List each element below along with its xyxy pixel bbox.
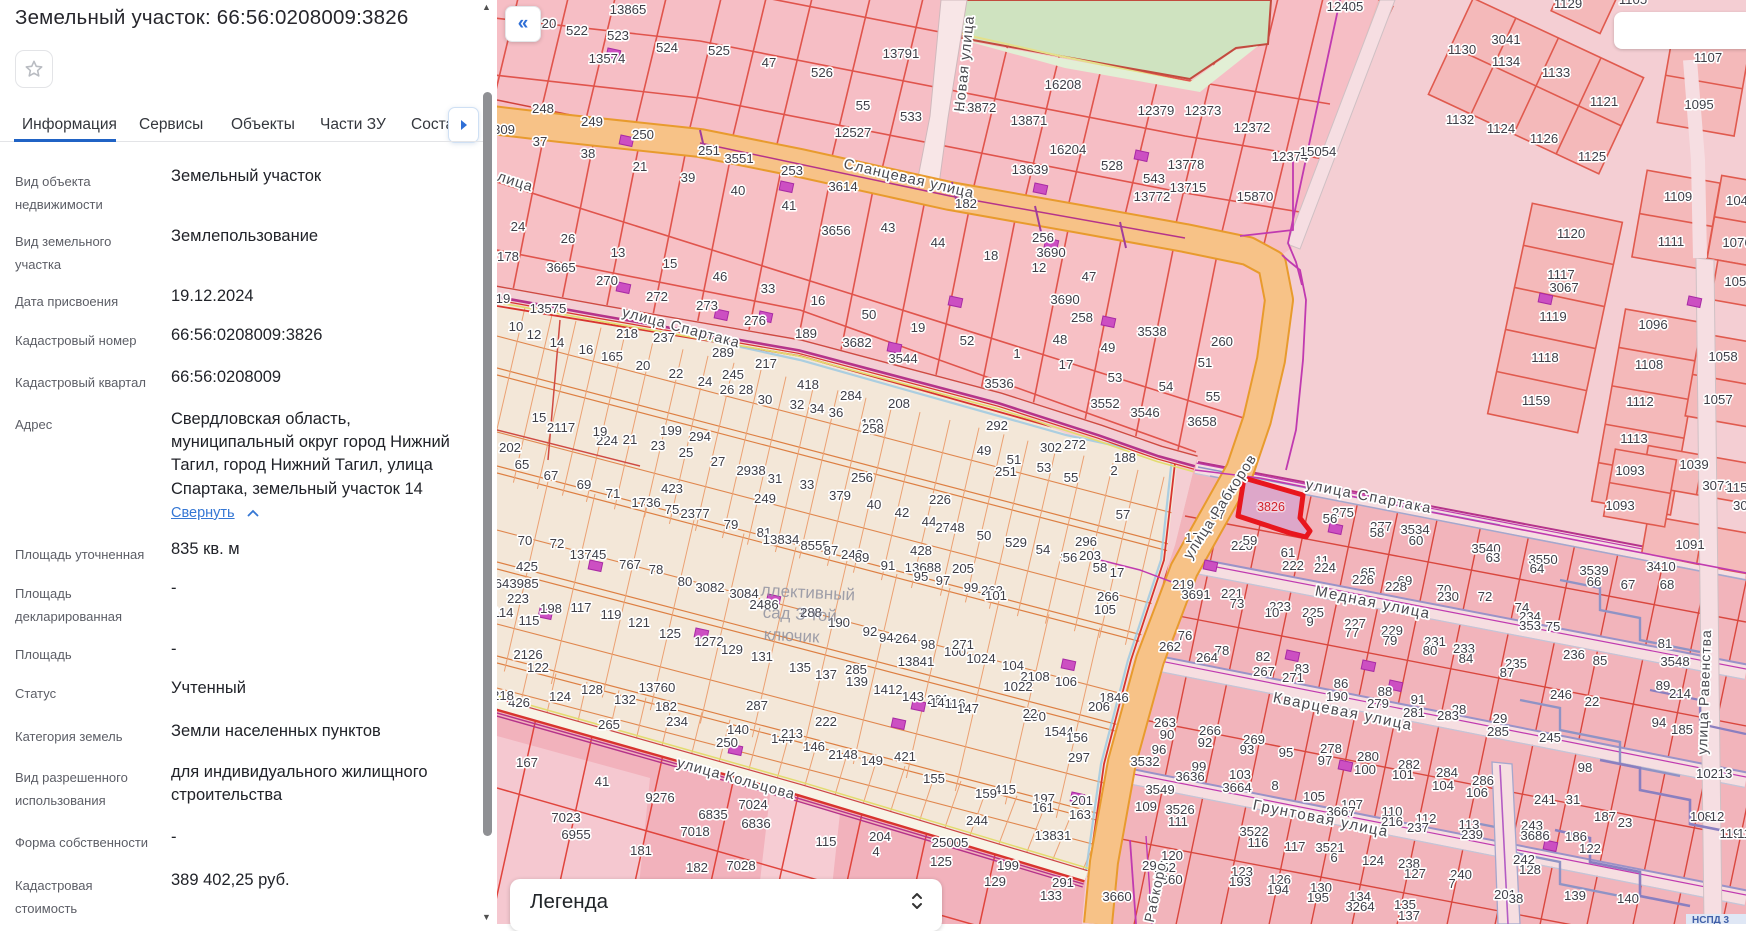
svg-text:253: 253	[781, 163, 803, 178]
svg-text:415: 415	[994, 782, 1016, 797]
svg-text:115: 115	[815, 834, 836, 849]
svg-text:1119: 1119	[1539, 309, 1566, 324]
svg-text:428: 428	[910, 543, 932, 558]
svg-text:33: 33	[761, 281, 776, 296]
svg-text:27: 27	[711, 454, 726, 469]
svg-text:50: 50	[977, 528, 992, 543]
svg-text:15: 15	[532, 410, 547, 425]
svg-text:1130: 1130	[1448, 42, 1476, 57]
svg-text:131: 131	[751, 649, 773, 664]
svg-text:237: 237	[1407, 820, 1429, 835]
svg-text:256: 256	[851, 470, 873, 485]
svg-text:3690: 3690	[1036, 245, 1065, 260]
svg-text:3549: 3549	[1145, 782, 1174, 797]
svg-text:4: 4	[872, 844, 879, 859]
svg-text:234: 234	[666, 714, 688, 729]
svg-text:3691: 3691	[1181, 587, 1210, 602]
svg-text:1058: 1058	[1708, 349, 1737, 364]
svg-text:НСПД 3: НСПД 3	[1692, 915, 1730, 924]
svg-text:3067: 3067	[1549, 280, 1578, 295]
svg-text:60: 60	[1409, 533, 1424, 548]
svg-text:132: 132	[614, 692, 636, 707]
svg-text:273: 273	[696, 298, 718, 313]
svg-text:89: 89	[855, 550, 870, 565]
svg-text:40: 40	[731, 183, 746, 198]
svg-text:250: 250	[632, 127, 654, 142]
svg-text:122: 122	[527, 660, 549, 675]
svg-text:533: 533	[900, 109, 922, 124]
svg-text:264: 264	[895, 631, 917, 646]
svg-text:58: 58	[1370, 525, 1385, 540]
svg-text:117: 117	[1284, 839, 1305, 854]
svg-text:19: 19	[593, 424, 608, 439]
svg-text:1076: 1076	[1722, 235, 1746, 250]
svg-text:47: 47	[1082, 269, 1097, 284]
svg-text:421: 421	[894, 749, 916, 764]
svg-text:18: 18	[984, 248, 999, 263]
svg-text:58: 58	[1093, 560, 1108, 575]
svg-text:22: 22	[1585, 694, 1600, 709]
svg-text:43: 43	[881, 220, 896, 235]
svg-text:78: 78	[649, 562, 664, 577]
svg-text:92: 92	[863, 624, 878, 639]
svg-text:147: 147	[957, 701, 979, 716]
svg-text:1124: 1124	[1487, 121, 1515, 136]
svg-text:1022: 1022	[1003, 679, 1032, 694]
svg-text:524: 524	[656, 40, 678, 55]
svg-text:87: 87	[824, 543, 839, 558]
svg-text:90: 90	[1160, 727, 1175, 742]
svg-text:129: 129	[721, 642, 743, 657]
svg-text:3614: 3614	[828, 179, 857, 194]
svg-text:79: 79	[724, 517, 739, 532]
svg-text:44: 44	[922, 514, 937, 529]
svg-text:161: 161	[1032, 800, 1054, 815]
svg-text:292: 292	[986, 418, 1008, 433]
svg-text:239: 239	[1461, 827, 1483, 842]
svg-text:214: 214	[1669, 686, 1691, 701]
svg-text:115: 115	[518, 613, 539, 628]
svg-text:56: 56	[1323, 511, 1338, 526]
svg-text:1643985: 1643985	[497, 576, 539, 591]
svg-text:53: 53	[1108, 370, 1123, 385]
svg-text:66: 66	[1587, 574, 1602, 589]
svg-text:97: 97	[1318, 753, 1333, 768]
svg-text:15: 15	[663, 256, 678, 271]
svg-text:47: 47	[762, 55, 777, 70]
svg-text:226: 226	[929, 492, 951, 507]
svg-text:13574: 13574	[589, 51, 626, 66]
svg-text:50: 50	[862, 307, 877, 322]
svg-text:3082: 3082	[695, 580, 724, 595]
svg-text:1057: 1057	[1703, 392, 1732, 407]
svg-text:115: 115	[1726, 480, 1746, 495]
svg-text:3682: 3682	[842, 335, 871, 350]
svg-text:22: 22	[1023, 706, 1038, 721]
svg-text:102: 102	[1696, 766, 1718, 781]
svg-text:67: 67	[1621, 577, 1636, 592]
svg-text:31: 31	[1566, 792, 1581, 807]
svg-text:3636: 3636	[1175, 769, 1204, 784]
svg-text:16204: 16204	[1050, 142, 1087, 157]
svg-text:523: 523	[607, 28, 629, 43]
svg-text:1109: 1109	[1664, 189, 1692, 204]
svg-text:1125: 1125	[1578, 149, 1606, 164]
svg-text:36: 36	[829, 405, 844, 420]
svg-text:3658: 3658	[1187, 414, 1216, 429]
svg-text:100: 100	[1354, 762, 1376, 777]
svg-text:41: 41	[782, 198, 797, 213]
svg-text:195: 195	[1307, 890, 1329, 905]
svg-text:128: 128	[581, 682, 603, 697]
svg-text:40: 40	[867, 497, 882, 512]
svg-text:26: 26	[561, 231, 576, 246]
svg-text:22: 22	[669, 366, 684, 381]
svg-text:12379: 12379	[1138, 103, 1175, 118]
svg-text:20: 20	[542, 16, 557, 31]
svg-text:105: 105	[1303, 789, 1325, 804]
svg-text:111: 111	[1168, 814, 1188, 829]
svg-text:218: 218	[497, 688, 514, 703]
svg-text:3656: 3656	[821, 223, 850, 238]
svg-text:19: 19	[911, 320, 926, 335]
svg-text:97: 97	[936, 573, 951, 588]
svg-text:72: 72	[550, 536, 565, 551]
svg-text:121: 121	[628, 615, 650, 630]
svg-text:1118: 1118	[1531, 350, 1558, 365]
svg-text:307: 307	[1733, 498, 1746, 513]
svg-text:3536: 3536	[984, 376, 1013, 391]
svg-text:264: 264	[1196, 650, 1218, 665]
svg-text:116: 116	[1247, 835, 1268, 850]
svg-text:75: 75	[665, 502, 680, 517]
svg-text:199: 199	[997, 858, 1019, 873]
svg-text:3665: 3665	[546, 260, 575, 275]
svg-text:12372: 12372	[1234, 120, 1271, 135]
svg-text:163: 163	[1069, 807, 1091, 822]
svg-text:114: 114	[497, 605, 514, 620]
svg-text:81: 81	[1658, 636, 1673, 651]
svg-text:189: 189	[795, 326, 817, 341]
svg-text:117: 117	[570, 600, 591, 615]
svg-text:127: 127	[1404, 866, 1426, 881]
svg-text:1107: 1107	[1694, 50, 1722, 65]
svg-text:65: 65	[515, 457, 530, 472]
svg-text:528: 528	[1101, 158, 1123, 173]
svg-text:213: 213	[781, 726, 803, 741]
svg-text:302: 302	[1040, 440, 1062, 455]
svg-text:222: 222	[1282, 558, 1304, 573]
svg-text:105: 105	[1094, 602, 1116, 617]
svg-text:137: 137	[815, 667, 837, 682]
svg-text:251: 251	[698, 143, 720, 158]
svg-text:55: 55	[856, 98, 871, 113]
svg-text:ключик: ключик	[763, 625, 820, 647]
svg-text:135: 135	[789, 660, 811, 675]
svg-text:6836: 6836	[741, 816, 770, 831]
svg-text:95: 95	[1279, 745, 1294, 760]
svg-text:52: 52	[960, 333, 975, 348]
svg-text:1096: 1096	[1638, 317, 1667, 332]
svg-text:242: 242	[1513, 852, 1535, 867]
svg-text:1093: 1093	[1605, 498, 1634, 513]
svg-text:187: 187	[1594, 809, 1616, 824]
svg-text:25005: 25005	[932, 835, 969, 850]
svg-text:2117: 2117	[547, 420, 575, 435]
svg-text:34: 34	[810, 401, 825, 416]
svg-text:1: 1	[1013, 346, 1020, 361]
svg-text:15054: 15054	[1300, 144, 1337, 159]
svg-text:28: 28	[739, 382, 754, 397]
svg-text:46: 46	[713, 269, 728, 284]
svg-text:3264: 3264	[1345, 899, 1374, 914]
svg-text:246: 246	[1550, 687, 1572, 702]
svg-text:198: 198	[540, 601, 562, 616]
svg-text:23: 23	[651, 438, 666, 453]
svg-text:7028: 7028	[726, 858, 755, 873]
svg-text:270: 270	[596, 273, 618, 288]
svg-text:55: 55	[1206, 389, 1221, 404]
svg-text:149: 149	[861, 753, 883, 768]
svg-text:236: 236	[1563, 647, 1585, 662]
svg-text:13: 13	[611, 245, 626, 260]
svg-text:297: 297	[1068, 750, 1090, 765]
svg-text:13778: 13778	[1168, 157, 1205, 172]
svg-text:12: 12	[527, 327, 542, 342]
svg-text:3664: 3664	[1222, 780, 1251, 795]
svg-text:42: 42	[895, 505, 910, 520]
svg-text:10: 10	[509, 319, 524, 334]
svg-text:84: 84	[1459, 651, 1474, 666]
svg-text:7: 7	[1448, 876, 1455, 891]
svg-text:3551: 3551	[724, 151, 753, 166]
svg-text:38: 38	[581, 146, 596, 161]
svg-text:57: 57	[1116, 507, 1131, 522]
svg-text:3660: 3660	[1102, 889, 1131, 904]
svg-text:1053: 1053	[1724, 274, 1746, 289]
svg-text:267: 267	[1253, 664, 1275, 679]
svg-text:3552: 3552	[1090, 396, 1119, 411]
svg-text:228: 228	[1385, 579, 1407, 594]
svg-text:7024: 7024	[738, 797, 767, 812]
svg-text:49: 49	[977, 443, 992, 458]
svg-text:1134: 1134	[1492, 54, 1520, 69]
svg-text:1120: 1120	[1557, 226, 1585, 241]
svg-text:201: 201	[1071, 793, 1093, 808]
svg-text:сад З той: сад З той	[762, 603, 837, 626]
svg-text:13772: 13772	[1134, 189, 1171, 204]
svg-text:1024: 1024	[966, 651, 995, 666]
svg-text:13715: 13715	[1170, 180, 1207, 195]
svg-text:256: 256	[1032, 230, 1054, 245]
svg-text:260: 260	[1211, 334, 1233, 349]
svg-text:1121: 1121	[1590, 94, 1618, 109]
svg-text:206: 206	[1088, 699, 1110, 714]
svg-text:69: 69	[577, 477, 592, 492]
svg-text:64: 64	[1530, 561, 1545, 576]
svg-text:54: 54	[1159, 379, 1174, 394]
svg-text:1736: 1736	[631, 495, 660, 510]
svg-text:33: 33	[800, 477, 815, 492]
svg-text:55: 55	[1064, 470, 1079, 485]
svg-text:93: 93	[1240, 742, 1255, 757]
svg-text:49: 49	[1101, 340, 1116, 355]
svg-text:17: 17	[1059, 357, 1074, 372]
svg-text:1093: 1093	[1615, 463, 1644, 478]
svg-text:10: 10	[1265, 605, 1280, 620]
svg-text:1112: 1112	[1626, 394, 1653, 409]
svg-text:16: 16	[579, 342, 594, 357]
svg-text:1126: 1126	[1530, 131, 1558, 146]
svg-text:41: 41	[595, 774, 610, 789]
svg-text:12: 12	[1710, 809, 1725, 824]
svg-text:87: 87	[1500, 665, 1515, 680]
svg-text:185: 185	[1671, 722, 1693, 737]
svg-text:522: 522	[566, 23, 588, 38]
svg-text:3826: 3826	[1257, 500, 1285, 514]
svg-text:3538: 3538	[1137, 324, 1166, 339]
svg-text:2: 2	[1110, 463, 1117, 478]
svg-text:6955: 6955	[561, 827, 590, 842]
svg-text:124: 124	[549, 689, 571, 704]
svg-text:13575: 13575	[530, 301, 567, 316]
svg-text:6: 6	[1330, 850, 1337, 865]
svg-text:155: 155	[923, 771, 945, 786]
svg-text:271: 271	[1282, 670, 1304, 685]
svg-text:13745: 13745	[570, 547, 607, 562]
svg-text:199: 199	[660, 423, 682, 438]
svg-text:271: 271	[952, 637, 974, 652]
svg-text:13841: 13841	[898, 654, 935, 669]
svg-text:418: 418	[797, 377, 819, 392]
svg-text:222: 222	[815, 714, 837, 729]
svg-text:12405: 12405	[1327, 0, 1364, 14]
svg-text:104: 104	[1726, 193, 1746, 208]
svg-text:80: 80	[678, 574, 693, 589]
svg-text:3546: 3546	[1130, 405, 1159, 420]
svg-text:24: 24	[698, 374, 713, 389]
svg-text:99: 99	[964, 580, 979, 595]
svg-text:16: 16	[811, 293, 826, 308]
svg-text:146: 146	[803, 739, 825, 754]
svg-text:109: 109	[1135, 799, 1157, 814]
svg-text:54: 54	[1036, 542, 1051, 557]
svg-text:165: 165	[601, 349, 623, 364]
svg-text:250: 250	[716, 735, 738, 750]
svg-text:1111: 1111	[1658, 234, 1684, 249]
svg-text:3544: 3544	[888, 351, 917, 366]
svg-text:217: 217	[755, 356, 777, 371]
svg-text:296: 296	[1075, 534, 1097, 549]
svg-text:26: 26	[720, 382, 735, 397]
svg-text:125: 125	[659, 626, 681, 641]
svg-text:12: 12	[1032, 260, 1047, 275]
svg-text:285: 285	[1487, 724, 1509, 739]
svg-text:3041: 3041	[1491, 32, 1520, 47]
svg-text:167: 167	[516, 755, 538, 770]
svg-text:244: 244	[966, 813, 988, 828]
svg-text:202: 202	[499, 440, 521, 455]
svg-text:7023: 7023	[551, 810, 580, 825]
svg-text:133: 133	[1040, 888, 1062, 903]
svg-text:12373: 12373	[1185, 103, 1222, 118]
svg-text:205: 205	[952, 561, 974, 576]
svg-text:309: 309	[497, 122, 515, 137]
svg-text:38: 38	[1509, 891, 1524, 906]
svg-text:526: 526	[811, 65, 833, 80]
svg-text:56: 56	[1063, 550, 1078, 565]
svg-text:13865: 13865	[610, 2, 647, 17]
svg-text:2748: 2748	[935, 520, 964, 535]
svg-text:276: 276	[744, 313, 766, 328]
svg-text:104: 104	[1432, 778, 1454, 793]
svg-text:1108: 1108	[1635, 357, 1663, 372]
svg-text:124: 124	[1362, 853, 1384, 868]
svg-text:13760: 13760	[639, 680, 676, 695]
svg-text:1105: 1105	[1619, 0, 1647, 7]
svg-text:249: 249	[754, 491, 776, 506]
svg-text:3686: 3686	[1520, 828, 1549, 843]
svg-text:1159: 1159	[1522, 393, 1550, 408]
svg-text:30: 30	[758, 392, 773, 407]
svg-text:1113: 1113	[1620, 431, 1647, 446]
svg-text:106: 106	[1466, 785, 1488, 800]
svg-text:9276: 9276	[645, 790, 674, 805]
svg-text:159: 159	[975, 786, 997, 801]
svg-text:125: 125	[930, 854, 952, 869]
svg-text:230: 230	[1437, 589, 1459, 604]
svg-text:67: 67	[544, 468, 559, 483]
svg-text:101: 101	[985, 588, 1007, 603]
svg-text:13831: 13831	[1035, 828, 1072, 843]
svg-text:12527: 12527	[835, 125, 872, 140]
svg-text:182: 182	[655, 699, 677, 714]
svg-text:294: 294	[689, 429, 711, 444]
svg-text:48: 48	[1053, 332, 1068, 347]
svg-text:17: 17	[1110, 565, 1125, 580]
svg-text:92: 92	[1198, 735, 1213, 750]
svg-text:122: 122	[1579, 841, 1601, 856]
svg-text:73: 73	[1230, 596, 1245, 611]
svg-text:77: 77	[1345, 625, 1360, 640]
svg-text:3548: 3548	[1660, 654, 1689, 669]
svg-text:2148: 2148	[828, 747, 857, 762]
svg-text:193: 193	[1229, 874, 1251, 889]
svg-text:251: 251	[995, 464, 1017, 479]
svg-text:129: 129	[984, 874, 1006, 889]
svg-text:25: 25	[679, 445, 694, 460]
svg-text:63: 63	[1486, 550, 1501, 565]
svg-text:82: 82	[1256, 649, 1271, 664]
svg-text:16208: 16208	[1045, 77, 1082, 92]
svg-text:284: 284	[840, 388, 862, 403]
svg-text:23: 23	[1618, 815, 1633, 830]
svg-text:182: 182	[686, 860, 708, 875]
svg-text:21: 21	[633, 159, 648, 174]
svg-text:226: 226	[1352, 572, 1374, 587]
svg-text:272: 272	[646, 289, 668, 304]
svg-text:425: 425	[516, 559, 538, 574]
svg-text:1132: 1132	[1446, 112, 1474, 127]
svg-text:767: 767	[619, 557, 641, 572]
svg-text:272: 272	[1064, 437, 1086, 452]
svg-text:1133: 1133	[1542, 65, 1570, 80]
svg-text:1272: 1272	[694, 634, 723, 649]
svg-text:262: 262	[1159, 639, 1181, 654]
svg-text:32: 32	[790, 397, 805, 412]
svg-text:3410: 3410	[1646, 559, 1675, 574]
svg-text:543: 543	[1143, 171, 1165, 186]
